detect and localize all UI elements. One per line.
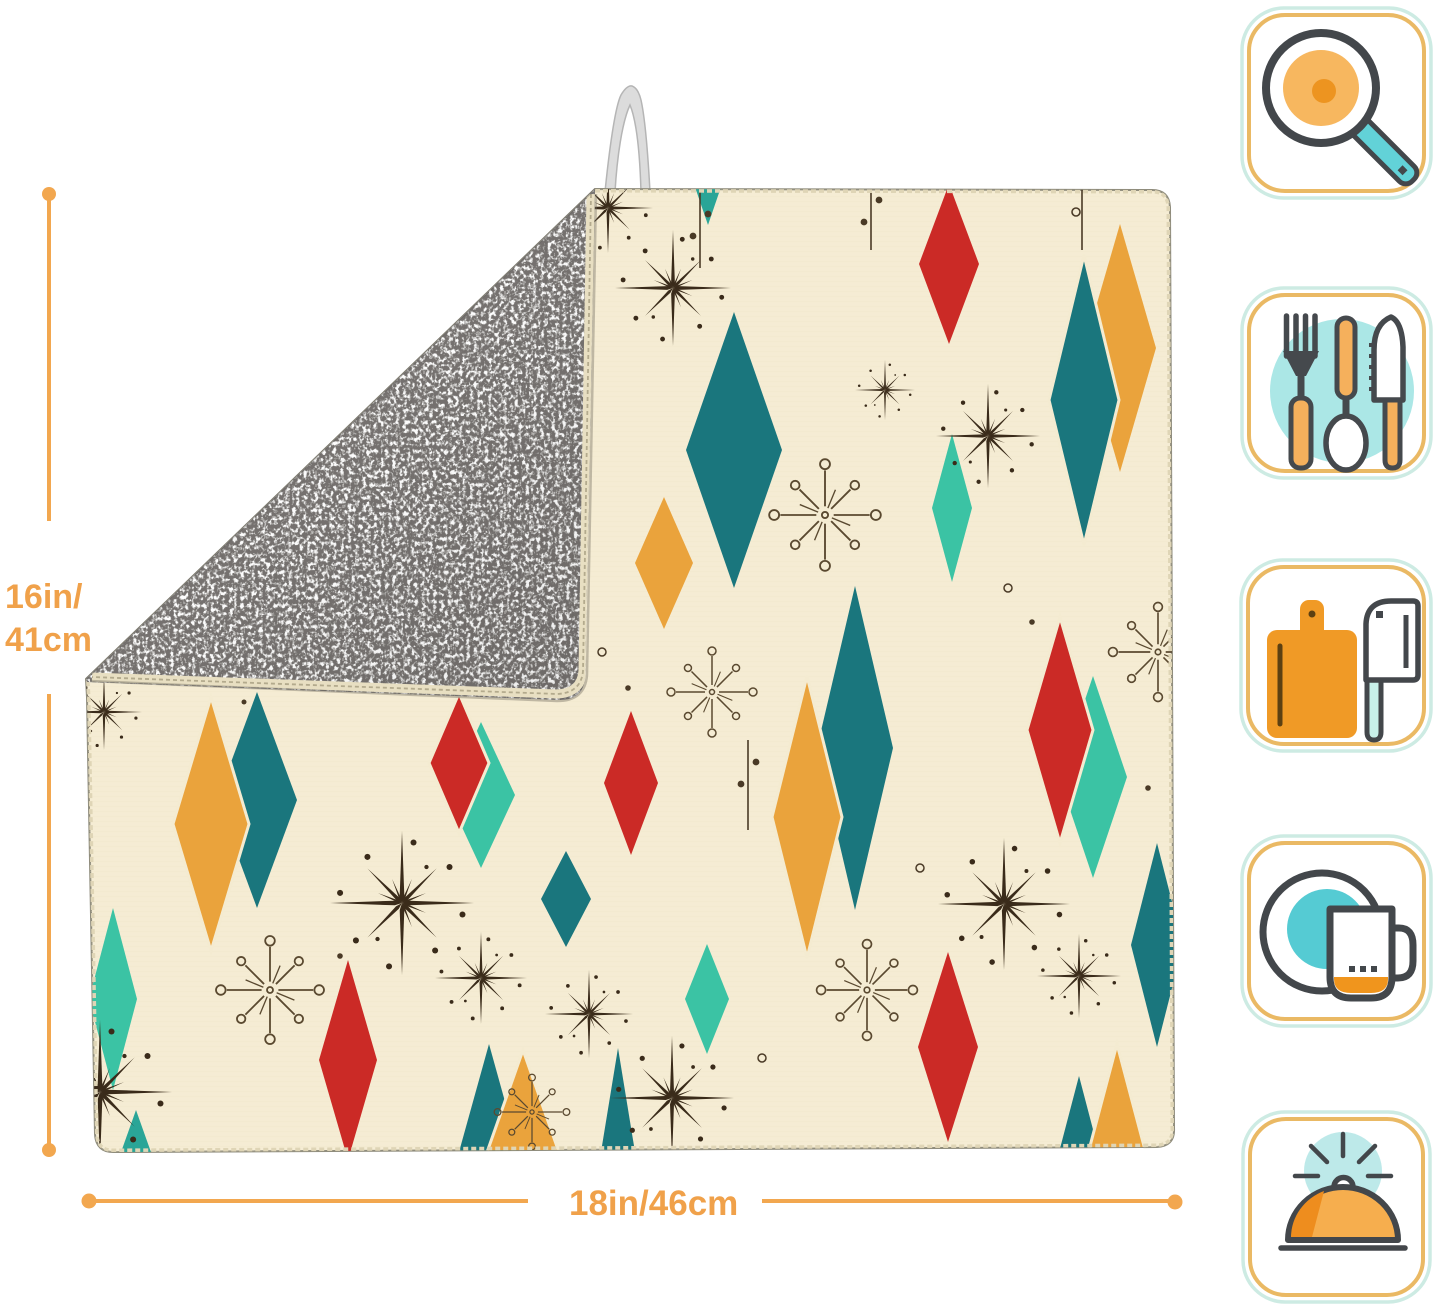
svg-text:41cm: 41cm bbox=[5, 621, 92, 659]
svg-text:18in/46cm: 18in/46cm bbox=[569, 1184, 738, 1223]
svg-text:16in/: 16in/ bbox=[5, 578, 83, 616]
